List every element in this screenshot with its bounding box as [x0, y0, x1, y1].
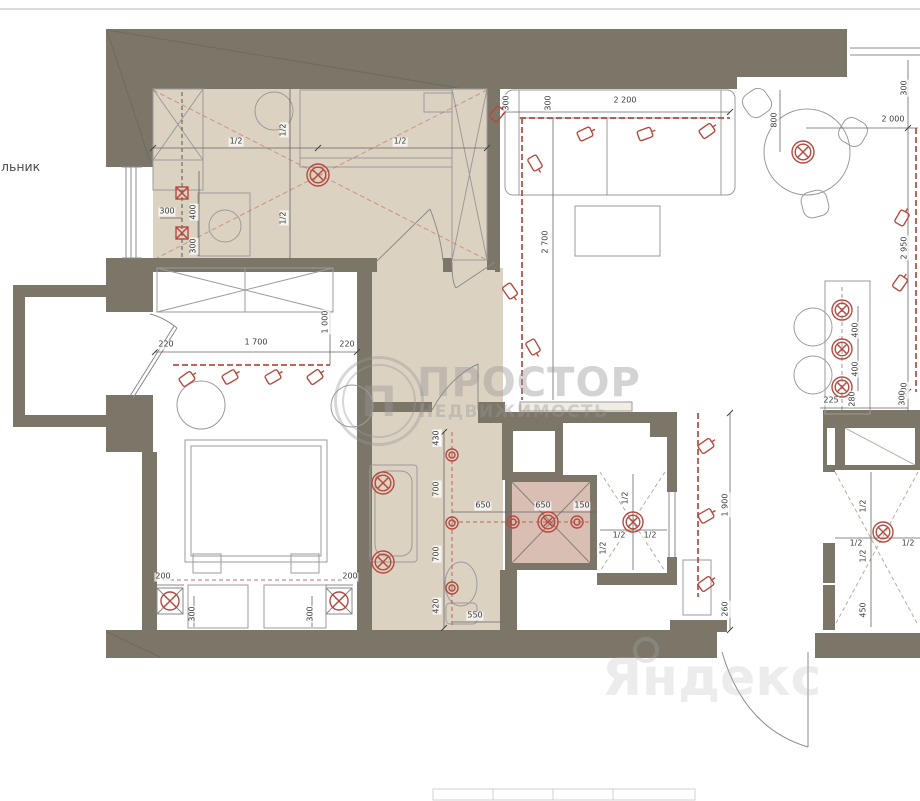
dimension-label: 300	[901, 79, 910, 96]
dimension-label: 300	[158, 208, 175, 217]
dimension-label: 400	[852, 321, 861, 338]
dimension-label: 220	[338, 341, 355, 350]
dimension-label: 300	[503, 94, 512, 111]
dimension-label: 1/2	[860, 549, 869, 564]
dimension-label: 700	[433, 545, 442, 562]
dimension-label: 1 000	[322, 310, 331, 335]
dimension-label: 1 700	[244, 339, 269, 348]
dimension-label: 300	[189, 605, 198, 622]
dimension-label: 300	[899, 389, 908, 406]
dimension-label: 1/2	[600, 541, 609, 556]
dimension-label: 150	[573, 502, 590, 511]
dimension-label: 200	[341, 573, 358, 582]
dimension-label: 1/2	[643, 532, 658, 541]
dimension-label: 200	[154, 573, 171, 582]
dimension-label: 2 700	[542, 230, 551, 255]
dimension-label: 550	[466, 612, 483, 621]
dimension-label: 1/2	[901, 540, 916, 549]
dimension-labels: 1/21/21/21/23004003003003002 2002 700800…	[0, 0, 920, 801]
dimension-label: 400	[190, 203, 199, 220]
dimension-label: 2 200	[613, 97, 638, 106]
dimension-label: 420	[433, 597, 442, 614]
dimension-label: 700	[433, 480, 442, 497]
dimension-label: 800	[771, 111, 780, 128]
note-refrigerator: льник	[1, 159, 40, 174]
dimension-label: 1/2	[612, 532, 627, 541]
dimension-label: 1/2	[393, 138, 408, 147]
dimension-label: 1/2	[860, 499, 869, 514]
dimension-label: 1/2	[280, 123, 289, 138]
dimension-label: 650	[474, 502, 491, 511]
dimension-label: 280	[849, 390, 858, 407]
dimension-label: 300	[545, 94, 554, 111]
dimension-label: 260	[722, 600, 731, 617]
dimension-label: 400	[852, 360, 861, 377]
dimension-label: 225	[822, 397, 839, 406]
dimension-label: 2 000	[881, 116, 906, 125]
dimension-label: 300	[190, 237, 199, 254]
floor-plan: 1/21/21/21/23004003003003002 2002 700800…	[0, 0, 920, 801]
dimension-label: 450	[860, 601, 869, 618]
dimension-label: 430	[433, 429, 442, 446]
dimension-label: 1 900	[722, 493, 731, 518]
dimension-label: 300	[307, 605, 316, 622]
dimension-label: 220	[157, 341, 174, 350]
dimension-label: 1/2	[849, 540, 864, 549]
dimension-label: 1/2	[280, 211, 289, 226]
dimension-label: 1/2	[622, 491, 631, 506]
dimension-label: 1/2	[229, 138, 244, 147]
dimension-label: 650	[534, 502, 551, 511]
dimension-label: 2 950	[901, 236, 910, 261]
